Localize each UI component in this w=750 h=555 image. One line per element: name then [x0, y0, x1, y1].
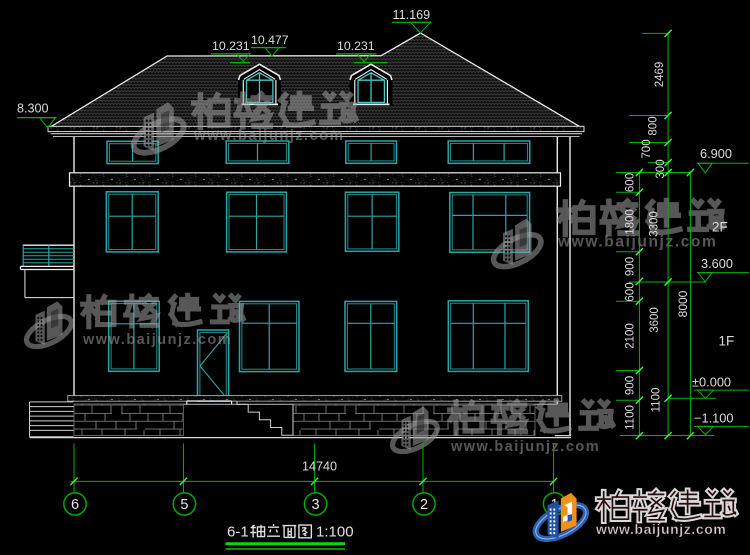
svg-text:www.baijunjz.com: www.baijunjz.com — [557, 234, 717, 251]
svg-text:10.231: 10.231 — [337, 39, 375, 53]
svg-text:1:100: 1:100 — [316, 524, 354, 541]
svg-text:3.600: 3.600 — [701, 256, 733, 271]
svg-text:1800: 1800 — [625, 209, 637, 235]
svg-text:11.169: 11.169 — [393, 8, 431, 22]
svg-text:www.baijunjz.com: www.baijunjz.com — [595, 521, 726, 537]
svg-text:6.900: 6.900 — [700, 146, 732, 161]
svg-text:www.baijunjz.com: www.baijunjz.com — [193, 127, 344, 144]
svg-text:900: 900 — [625, 257, 637, 276]
svg-text:3: 3 — [312, 497, 320, 513]
svg-text:8000: 8000 — [676, 290, 690, 317]
svg-text:1100: 1100 — [651, 388, 663, 413]
svg-text:10.477: 10.477 — [251, 33, 289, 47]
svg-text:www.baijunjz.com: www.baijunjz.com — [450, 439, 600, 455]
svg-text:±0.000: ±0.000 — [692, 374, 731, 389]
svg-text:2: 2 — [420, 497, 428, 513]
svg-text:900: 900 — [625, 376, 637, 395]
svg-text:2100: 2100 — [625, 323, 637, 349]
svg-text:800: 800 — [648, 116, 660, 135]
svg-text:700: 700 — [641, 139, 653, 158]
svg-text:1100: 1100 — [625, 405, 637, 430]
svg-text:6-1: 6-1 — [227, 524, 249, 541]
svg-text:8.300: 8.300 — [17, 101, 49, 115]
svg-text:−1.100: −1.100 — [694, 411, 734, 426]
svg-text:5: 5 — [180, 497, 188, 513]
svg-text:300: 300 — [655, 159, 667, 178]
svg-text:600: 600 — [625, 173, 637, 192]
svg-text:10.231: 10.231 — [212, 39, 250, 53]
svg-text:3300: 3300 — [649, 211, 661, 237]
svg-text:14740: 14740 — [302, 460, 337, 474]
svg-text:6: 6 — [71, 497, 79, 513]
svg-text:2469: 2469 — [654, 62, 666, 88]
svg-text:3600: 3600 — [649, 307, 661, 333]
svg-text:www.baijunjz.com: www.baijunjz.com — [82, 332, 232, 348]
svg-text:2F: 2F — [712, 220, 728, 235]
svg-text:1F: 1F — [719, 334, 735, 349]
svg-text:600: 600 — [625, 282, 637, 301]
